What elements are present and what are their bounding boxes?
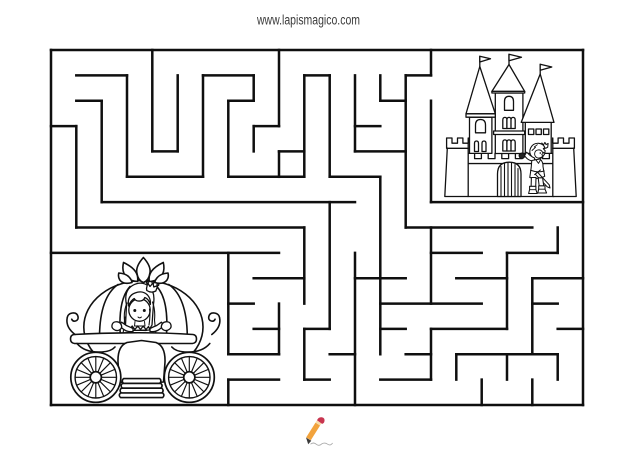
svg-text:www.lapismagico.com: www.lapismagico.com: [256, 13, 360, 28]
